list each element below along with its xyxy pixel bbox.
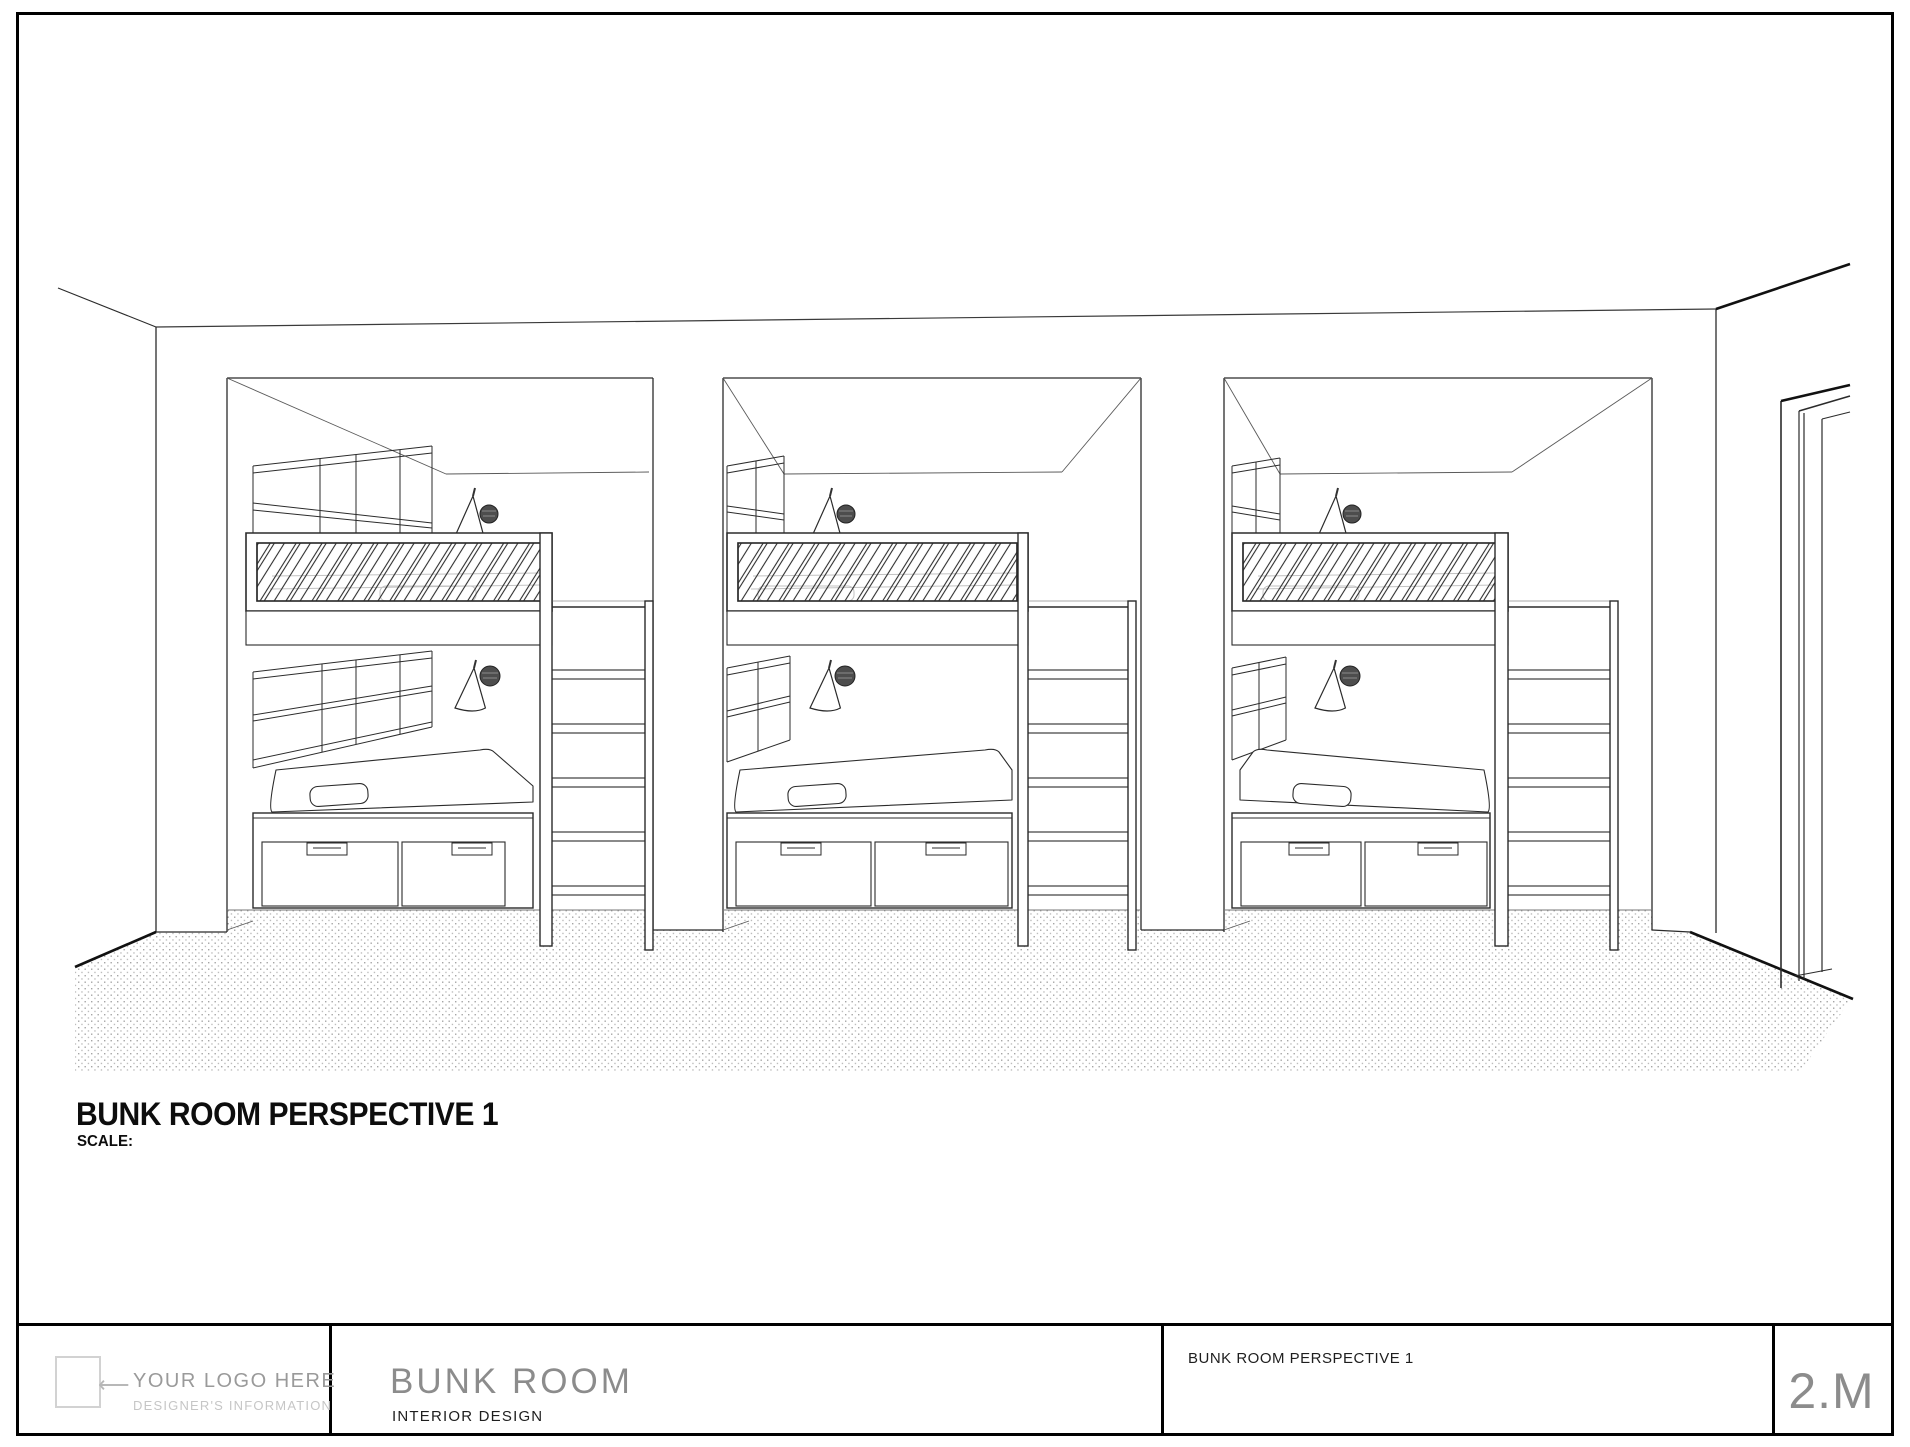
drawing-sheet: BUNK ROOM PERSPECTIVE 1 SCALE: ⟵ YOUR LO… (0, 0, 1910, 1447)
designer-info-text: DESIGNER'S INFORMATION (133, 1398, 332, 1413)
title-block-divider-2 (1161, 1323, 1164, 1436)
title-block-top-rule (16, 1323, 1894, 1326)
logo-placeholder-box (55, 1356, 101, 1408)
drawing-title: BUNK ROOM PERSPECTIVE 1 (76, 1096, 498, 1133)
page-border (16, 12, 1894, 1436)
project-name: BUNK ROOM (390, 1362, 633, 1402)
logo-arrow-icon: ⟵ (98, 1372, 130, 1398)
logo-placeholder-text: YOUR LOGO HERE (133, 1370, 336, 1393)
project-subtitle: INTERIOR DESIGN (392, 1408, 543, 1425)
view-title: BUNK ROOM PERSPECTIVE 1 (1188, 1350, 1414, 1367)
drawing-scale-label: SCALE: (77, 1133, 133, 1151)
sheet-number: 2.M (1773, 1362, 1890, 1420)
